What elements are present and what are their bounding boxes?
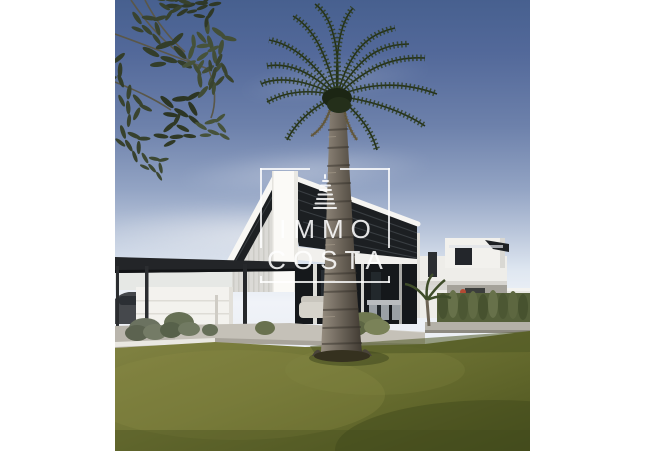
page: IMMO COSTA [0,0,645,451]
watermark-text-line1: IMMO [260,214,390,245]
watermark-text: IMMO COSTA [260,214,390,276]
watermark-frame [340,168,390,170]
cypress-tree-icon [310,173,340,213]
watermark-frame [260,168,310,170]
watermark-frame [260,281,390,283]
watermark-logo: IMMO COSTA [260,168,390,283]
watermark-text-line2: COSTA [260,245,390,276]
property-photo: IMMO COSTA [115,0,530,451]
